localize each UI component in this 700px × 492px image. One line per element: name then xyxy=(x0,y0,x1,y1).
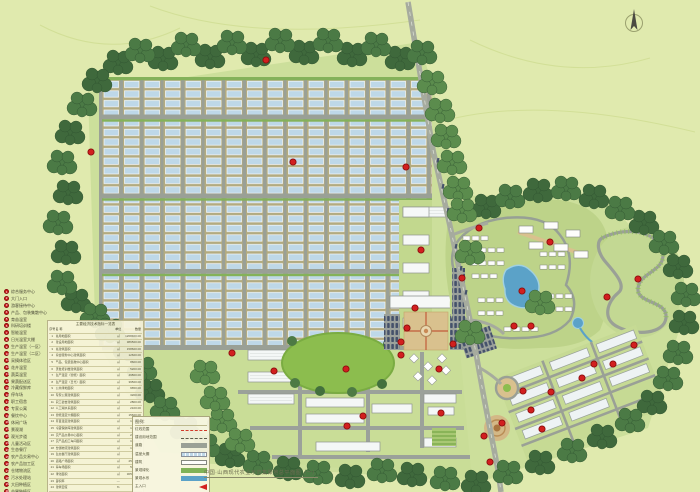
legend-swatch-road xyxy=(181,443,207,448)
legend-item: 29大田种植区 xyxy=(4,481,68,488)
legend-item: 1综合服务中心 xyxy=(4,288,68,295)
legend-item-label: 大门入口 xyxy=(11,296,27,301)
numbered-site-marker xyxy=(263,57,269,63)
numbered-site-marker xyxy=(499,420,505,426)
legend-item: 20休闲广场 xyxy=(4,419,68,426)
legend-item-label: 儿童活动区 xyxy=(11,441,31,446)
legend-swatch-arrow xyxy=(199,484,207,490)
legend-item: 9生产温室（一区） xyxy=(4,343,68,350)
indicator-cell: ㎡ xyxy=(114,465,122,471)
graphic-legend-label: 景观水系 xyxy=(135,476,149,481)
numbered-site-marker xyxy=(539,426,545,432)
site-master-plan: 1综合服务中心2大门入口3游客接待中心4产品、包装集散中心5育苗温室6科研培训楼… xyxy=(0,0,700,492)
numbered-site-marker xyxy=(519,288,525,294)
indicator-cell: 39500.00 xyxy=(122,380,142,386)
legend-marker-dot: 28 xyxy=(4,475,9,480)
numbered-site-marker xyxy=(412,305,418,311)
legend-marker-dot: 26 xyxy=(4,461,9,466)
indicator-cell: — xyxy=(114,479,122,485)
plan-title: 中国·山西现代农业示范集聚地总平面图（一） xyxy=(204,469,318,478)
legend-item-label: 仓储物流区 xyxy=(11,468,31,473)
indicator-cell: 5200.00 xyxy=(122,367,142,373)
legend-swatch-greenhouse xyxy=(181,452,207,457)
indicator-cell: 12600.00 xyxy=(122,353,142,359)
legend-item-label: 智能温室 xyxy=(11,330,27,335)
numbered-site-marker xyxy=(604,294,610,300)
graphic-legend-row: 温室大棚 xyxy=(135,450,207,458)
legend-item: 24生态餐厅 xyxy=(4,446,68,453)
numbered-site-marker xyxy=(610,361,616,367)
legend-item-label: 产品、包装集散中心 xyxy=(11,310,47,315)
indicator-cell: 3200.00 xyxy=(122,393,142,399)
legend-item: 13蔬菜温室 xyxy=(4,371,68,378)
legend-item-label: 农产品加工区 xyxy=(11,461,35,466)
legend-item-label: 游客接待中心 xyxy=(11,303,35,308)
graphic-legend-label: 建设用地范围 xyxy=(135,435,157,440)
legend-item: 5育苗温室 xyxy=(4,316,68,323)
legend-item-label: 生产温室（二区） xyxy=(11,351,43,356)
legend-marker-dot: 24 xyxy=(4,447,9,452)
graphic-legend-rows: 红线范围建设用地范围道路温室大棚建筑景观绿化景观水系主入口水系 xyxy=(135,426,207,492)
legend-item: 14果蔬配送区 xyxy=(4,378,68,385)
legend-marker-dot: 5 xyxy=(4,317,9,322)
legend-marker-dot: 3 xyxy=(4,303,9,308)
numbered-site-marker xyxy=(360,413,366,419)
legend-marker-dot: 23 xyxy=(4,441,9,446)
legend-marker-dot: 21 xyxy=(4,427,9,432)
legend-item-label: 蔬菜温室 xyxy=(11,372,27,377)
numbered-site-marker xyxy=(436,366,442,372)
numbered-site-marker xyxy=(290,159,296,165)
graphic-legend-row: 红线范围 xyxy=(135,426,207,434)
numbered-site-marker xyxy=(418,247,424,253)
small-pond xyxy=(573,318,584,329)
legend-marker-dot: 25 xyxy=(4,454,9,459)
legend-item-label: 观光步道 xyxy=(11,434,27,439)
legend-swatch-dark-dash xyxy=(181,438,207,439)
crop-field xyxy=(432,428,456,446)
graphic-legend-label: 建筑 xyxy=(135,460,142,465)
graphic-legend-row: 景观绿化 xyxy=(135,466,207,474)
numbered-site-marker xyxy=(579,375,585,381)
parking-west xyxy=(384,314,400,350)
legend-marker-dot: 9 xyxy=(4,344,9,349)
numbered-site-marker xyxy=(450,341,456,347)
graphic-legend-row: 主入口 xyxy=(135,483,207,491)
numbered-legend-panel: 1综合服务中心2大门入口3游客接待中心4产品、包装集散中心5育苗温室6科研培训楼… xyxy=(4,288,68,492)
numbered-site-marker xyxy=(481,433,487,439)
legend-marker-dot: 7 xyxy=(4,330,9,335)
legend-item: 2大门入口 xyxy=(4,295,68,302)
legend-swatch-red-dash xyxy=(181,430,207,431)
legend-marker-dot: 20 xyxy=(4,420,9,425)
legend-item: 15冷藏保鲜库 xyxy=(4,384,68,391)
numbered-site-marker xyxy=(528,323,534,329)
indicator-cell: ㎡ xyxy=(114,373,122,379)
legend-item: 6科研培训楼 xyxy=(4,322,68,329)
numbered-site-marker xyxy=(548,389,554,395)
legend-item: 17职工宿舍 xyxy=(4,398,68,405)
indicator-cell: 8600.00 xyxy=(122,360,142,366)
legend-item-label: 花卉温室 xyxy=(11,365,27,370)
indicator-cell: 9650.00 xyxy=(122,386,142,392)
graphic-legend-row: 建筑 xyxy=(135,458,207,466)
legend-marker-dot: 29 xyxy=(4,482,9,487)
indicator-cell: ㎡ xyxy=(114,446,122,452)
legend-item-label: 果蔬配送区 xyxy=(11,379,31,384)
numbered-site-marker xyxy=(476,225,482,231)
legend-item: 18专家公寓 xyxy=(4,405,68,412)
graphic-legend-title: 图例: xyxy=(135,419,207,426)
indicator-cell: ㎡ xyxy=(114,419,122,425)
indicator-cell: ㎡ xyxy=(114,433,122,439)
indicator-cell: ㎡ xyxy=(114,472,122,478)
numbered-site-marker xyxy=(528,407,534,413)
legend-item-label: 休闲广场 xyxy=(11,420,27,425)
indicator-cell: 1268400.00 xyxy=(122,334,142,340)
indicator-cell: ㎡ xyxy=(114,380,122,386)
gate-building xyxy=(390,296,452,308)
legend-marker-dot: 15 xyxy=(4,385,9,390)
legend-marker-dot: 22 xyxy=(4,434,9,439)
indicator-cell: ㎡ xyxy=(114,426,122,432)
indicator-cell: ㎡ xyxy=(114,353,122,359)
numbered-site-marker xyxy=(438,410,444,416)
graphic-legend-label: 景观绿化 xyxy=(135,468,149,473)
indicator-cell: ㎡ xyxy=(114,439,122,445)
legend-item-label: 大田种植区 xyxy=(11,482,31,487)
legend-marker-dot: 11 xyxy=(4,358,9,363)
legend-marker-dot: 16 xyxy=(4,392,9,397)
numbered-site-marker xyxy=(403,164,409,170)
numbered-site-marker xyxy=(591,361,597,367)
legend-item: 12花卉温室 xyxy=(4,364,68,371)
indicator-cell: ㎡ xyxy=(114,406,122,412)
graphic-legend-panel: 图例: 红线范围建设用地范围道路温室大棚建筑景观绿化景观水系主入口水系 xyxy=(132,416,210,492)
indicator-column-header: 数量 xyxy=(122,327,142,333)
indicator-cell: ㎡ xyxy=(114,459,122,465)
graphic-legend-row: 景观水系 xyxy=(135,475,207,483)
legend-item: 11采摘体验区 xyxy=(4,357,68,364)
legend-item: 21景观湖 xyxy=(4,426,68,433)
indicator-cell: ㎡ xyxy=(114,347,122,353)
legend-item-label: 农产品交易中心 xyxy=(11,454,39,459)
graphic-legend-label: 温室大棚 xyxy=(135,452,149,457)
legend-marker-dot: 17 xyxy=(4,399,9,404)
numbered-site-marker xyxy=(520,388,526,394)
indicator-cell: ㎡ xyxy=(114,400,122,406)
indicator-cell: ㎡ xyxy=(114,334,122,340)
legend-item: 7智能温室 xyxy=(4,329,68,336)
indicator-cell: ㎡ xyxy=(114,413,122,419)
legend-item-label: 育苗温室 xyxy=(11,317,27,322)
numbered-site-marker xyxy=(547,239,553,245)
legend-item: 23儿童活动区 xyxy=(4,440,68,447)
legend-item: 16停车场 xyxy=(4,391,68,398)
legend-item: 28污水处理站 xyxy=(4,474,68,481)
indicator-cell: 386500.00 xyxy=(122,340,142,346)
legend-item-label: 职工宿舍 xyxy=(11,399,27,404)
legend-item-label: 生产温室（一区） xyxy=(11,344,43,349)
legend-marker-dot: 18 xyxy=(4,406,9,411)
greenhouse-grid xyxy=(99,77,438,350)
numbered-site-marker xyxy=(343,366,349,372)
legend-marker-dot: 4 xyxy=(4,310,9,315)
numbered-site-marker xyxy=(631,342,637,348)
legend-item-label: 生态餐厅 xyxy=(11,447,27,452)
legend-marker-dot: 14 xyxy=(4,379,9,384)
legend-item-label: 污水处理站 xyxy=(11,475,31,480)
indicator-cell: 158600.00 xyxy=(122,347,142,353)
indicator-column-header: 单位 xyxy=(114,327,122,333)
numbered-site-marker xyxy=(344,423,350,429)
graphic-legend-label: 主入口 xyxy=(135,484,146,489)
legend-item-label: 冷藏保鲜库 xyxy=(11,385,31,390)
legend-item-label: 景观湖 xyxy=(11,427,23,432)
numbered-site-marker xyxy=(635,276,641,282)
indicator-cell: ㎡ xyxy=(114,452,122,458)
legend-marker-dot: 19 xyxy=(4,413,9,418)
graphic-legend-label: 红线范围 xyxy=(135,427,149,432)
legend-marker-dot: 13 xyxy=(4,372,9,377)
legend-item: 26农产品加工区 xyxy=(4,460,68,467)
legend-marker-dot: 10 xyxy=(4,351,9,356)
legend-item-label: 科研培训楼 xyxy=(11,323,31,328)
numbered-site-marker xyxy=(404,325,410,331)
indicator-cell: ㎡ xyxy=(114,393,122,399)
legend-item: 22观光步道 xyxy=(4,433,68,440)
legend-item-label: 停车场 xyxy=(11,392,23,397)
indicator-cell: % xyxy=(114,485,122,491)
legend-marker-dot: 1 xyxy=(4,289,9,294)
indicator-cell: ㎡ xyxy=(114,386,122,392)
numbered-site-marker xyxy=(271,368,277,374)
numbered-site-marker xyxy=(511,323,517,329)
legend-item: 4产品、包装集散中心 xyxy=(4,309,68,316)
indicator-cell: 2800.00 xyxy=(122,400,142,406)
numbered-site-marker xyxy=(398,352,404,358)
numbered-site-marker xyxy=(88,149,94,155)
legend-item: 19餐饮中心 xyxy=(4,412,68,419)
indicator-cell: ㎡ xyxy=(114,340,122,346)
indicator-cell: 49800.00 xyxy=(122,373,142,379)
legend-swatch-building xyxy=(181,460,207,465)
legend-marker-dot: 12 xyxy=(4,365,9,370)
indicator-cell: 2100.00 xyxy=(122,406,142,412)
legend-item-label: 餐饮中心 xyxy=(11,413,27,418)
legend-item: 3游客接待中心 xyxy=(4,302,68,309)
graphic-legend-row: 建设用地范围 xyxy=(135,434,207,442)
legend-item-label: 采摘体验区 xyxy=(11,358,31,363)
graphic-legend-row: 道路 xyxy=(135,442,207,450)
legend-marker-dot: 27 xyxy=(4,468,9,473)
legend-item: 10生产温室（二区） xyxy=(4,350,68,357)
numbered-site-marker xyxy=(487,459,493,465)
legend-marker-dot: 2 xyxy=(4,296,9,301)
indicator-cell: ㎡ xyxy=(114,360,122,366)
numbered-site-marker xyxy=(459,275,465,281)
legend-item-label: 综合服务中心 xyxy=(11,289,35,294)
legend-item: 25农产品交易中心 xyxy=(4,453,68,460)
numbered-site-marker xyxy=(229,350,235,356)
legend-marker-dot: 8 xyxy=(4,337,9,342)
legend-item-label: 日光温室大棚 xyxy=(11,337,35,342)
graphic-legend-label: 道路 xyxy=(135,443,142,448)
indicator-cell: ㎡ xyxy=(114,367,122,373)
numbered-site-marker xyxy=(398,339,404,345)
legend-item-label: 专家公寓 xyxy=(11,406,27,411)
legend-marker-dot: 6 xyxy=(4,323,9,328)
legend-item: 8日光温室大棚 xyxy=(4,336,68,343)
legend-item: 27仓储物流区 xyxy=(4,467,68,474)
legend-item: 30苗圃种植区 xyxy=(4,488,68,492)
